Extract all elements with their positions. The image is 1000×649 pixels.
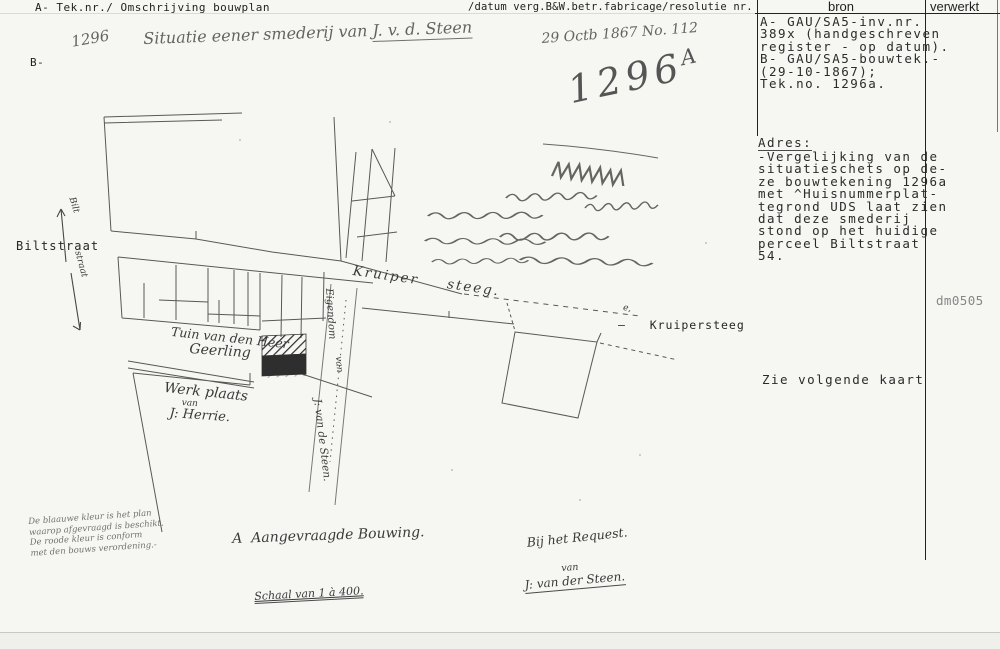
scan-bottom-band: [0, 632, 1000, 649]
request-note-line2: van: [561, 562, 579, 574]
see-next-map-note: Zie volgende kaart: [762, 374, 924, 386]
bron-column-header: bron: [828, 0, 854, 14]
lane-label-line2: van: [333, 356, 344, 373]
archive-code: dm0505: [936, 295, 984, 307]
ink-bleedthrough-scrawl: [425, 144, 658, 275]
kruipersteeg-label: — Kruipersteeg: [618, 318, 745, 332]
bron-box-left-border: [757, 0, 758, 136]
site-plan-drawing: [0, 0, 1000, 649]
archive-sheet: A- Tek.nr./ Omschrijving bouwplan /datum…: [0, 0, 1000, 649]
header-rule-faint: [0, 13, 757, 14]
scan-speckles: [239, 121, 707, 501]
biltstraat-label: Biltstraat: [16, 239, 99, 253]
bron-source-text: A- GAU/SA5-inv.nr. 389x (handgeschreven …: [760, 16, 950, 90]
header-label-b: B-: [30, 56, 44, 69]
title-owner-name: J. v. d. Steen: [372, 18, 472, 42]
header-label-datum: /datum verg.B&W.betr.fabricage/resolutie…: [468, 1, 753, 13]
scrawl-mark: e,: [622, 303, 632, 314]
verwerkt-column-header: verwerkt: [930, 0, 979, 14]
sheet-right-border: [997, 0, 998, 132]
adres-text: -Vergelijking van de situatieschets op d…: [758, 151, 948, 263]
